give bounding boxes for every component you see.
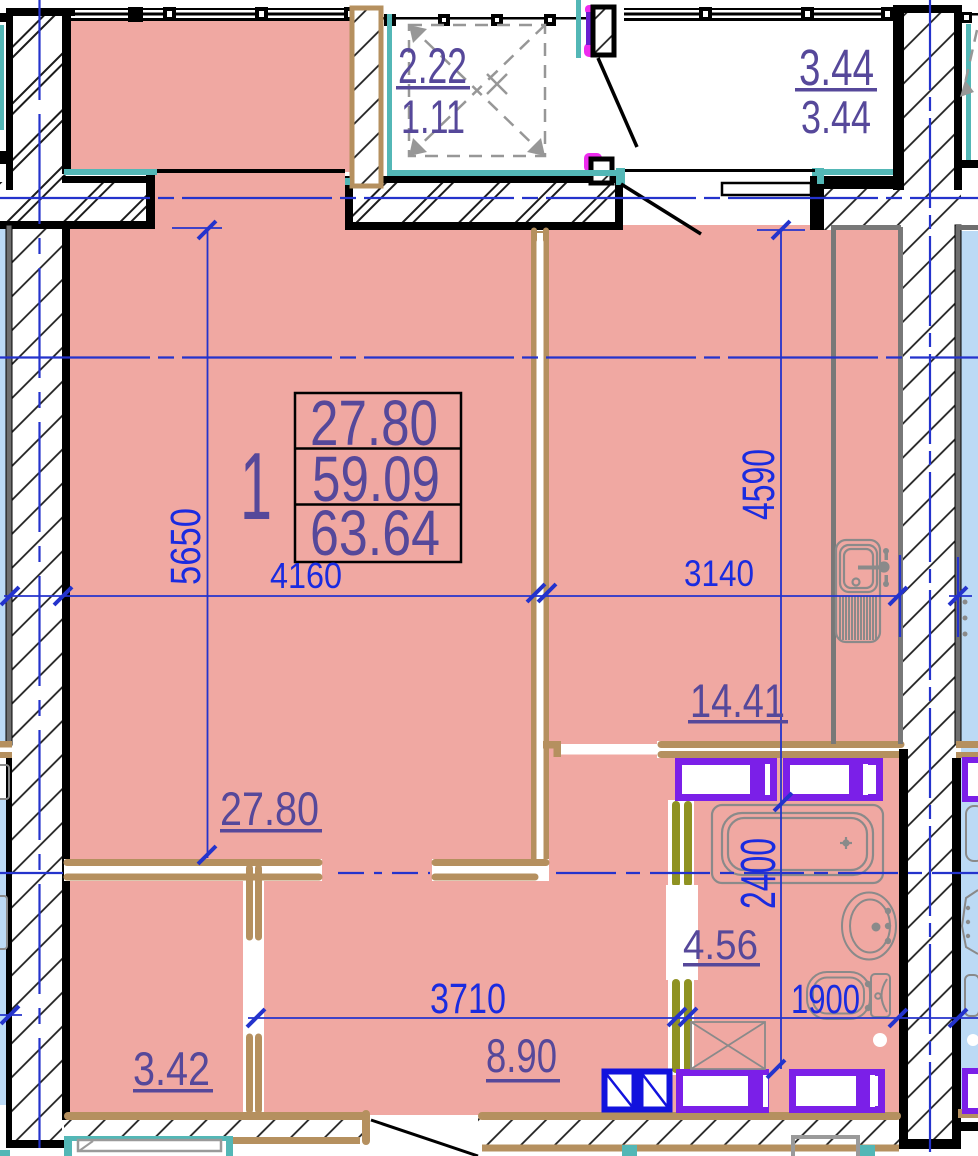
svg-text:27.80: 27.80 — [220, 782, 319, 835]
svg-text:3.44: 3.44 — [799, 39, 874, 96]
svg-text:4590: 4590 — [733, 449, 784, 520]
svg-text:5650: 5650 — [162, 508, 210, 585]
svg-text:1.11: 1.11 — [401, 90, 465, 143]
svg-text:3.42: 3.42 — [133, 1042, 210, 1095]
svg-text:3140: 3140 — [684, 553, 754, 594]
svg-text:2400: 2400 — [732, 838, 786, 909]
svg-text:3710: 3710 — [430, 975, 506, 1023]
svg-text:4.56: 4.56 — [683, 921, 758, 968]
svg-text:2.22: 2.22 — [398, 38, 467, 94]
svg-text:3.44: 3.44 — [801, 91, 871, 143]
svg-text:4160: 4160 — [270, 555, 342, 596]
svg-text:1900: 1900 — [791, 976, 860, 1022]
svg-text:14.41: 14.41 — [690, 674, 785, 727]
svg-text:1: 1 — [240, 433, 272, 540]
svg-text:8.90: 8.90 — [486, 1029, 557, 1082]
